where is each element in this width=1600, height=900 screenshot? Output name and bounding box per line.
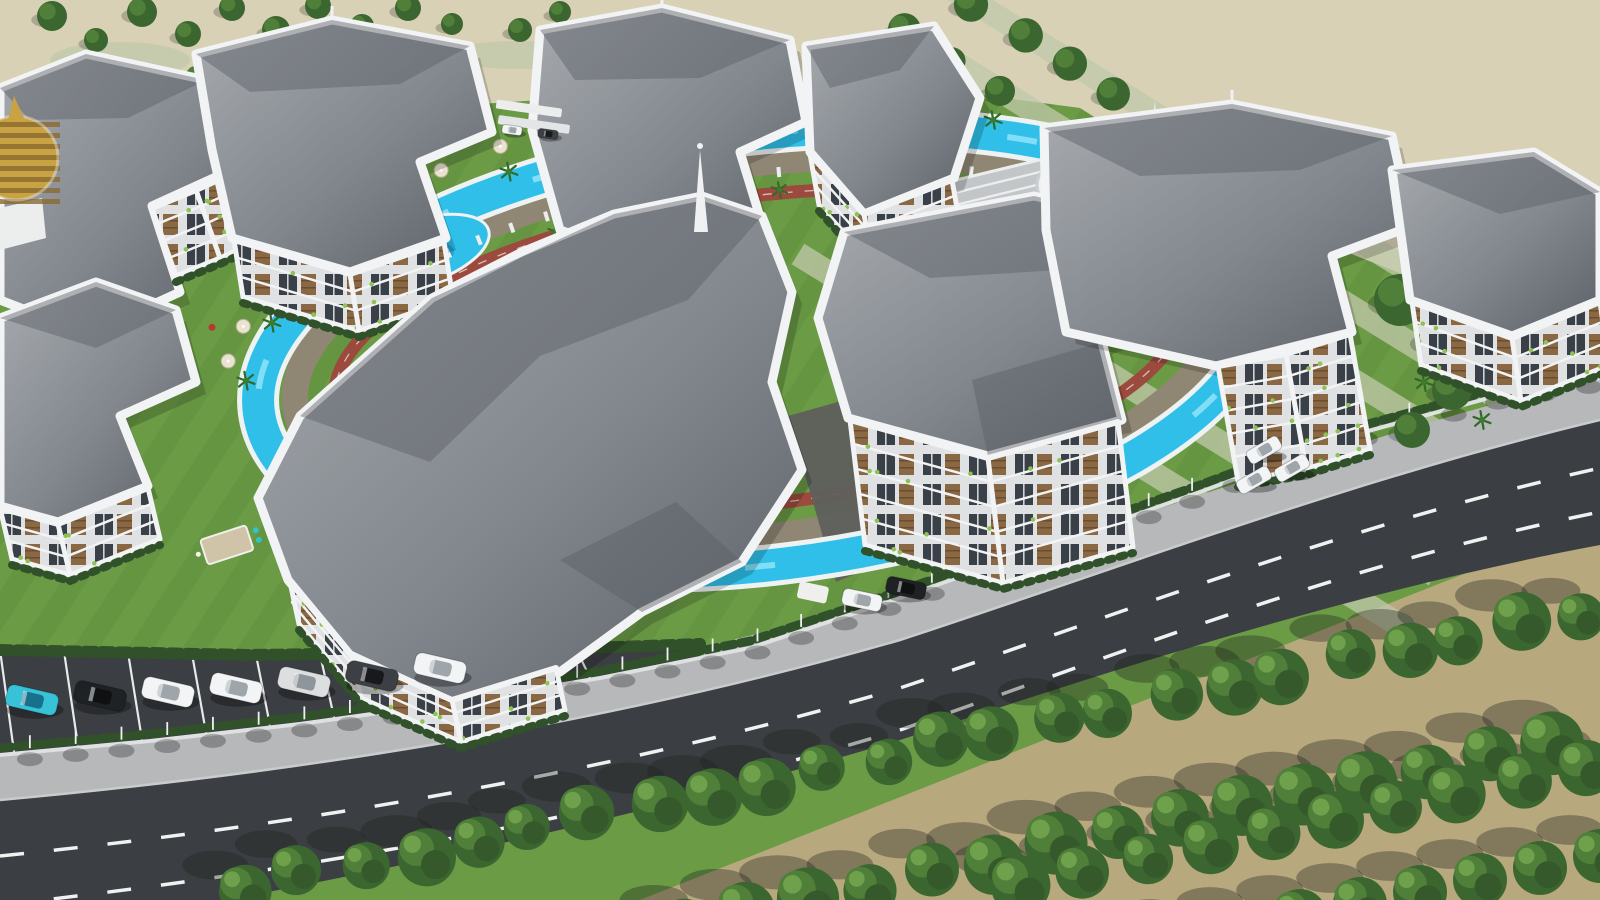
- resort-aerial-view: [0, 0, 1600, 900]
- architectural-rendering: Aerial 3D architectural rendering of a w…: [0, 0, 1600, 900]
- building-east-edge-block: [1392, 152, 1600, 407]
